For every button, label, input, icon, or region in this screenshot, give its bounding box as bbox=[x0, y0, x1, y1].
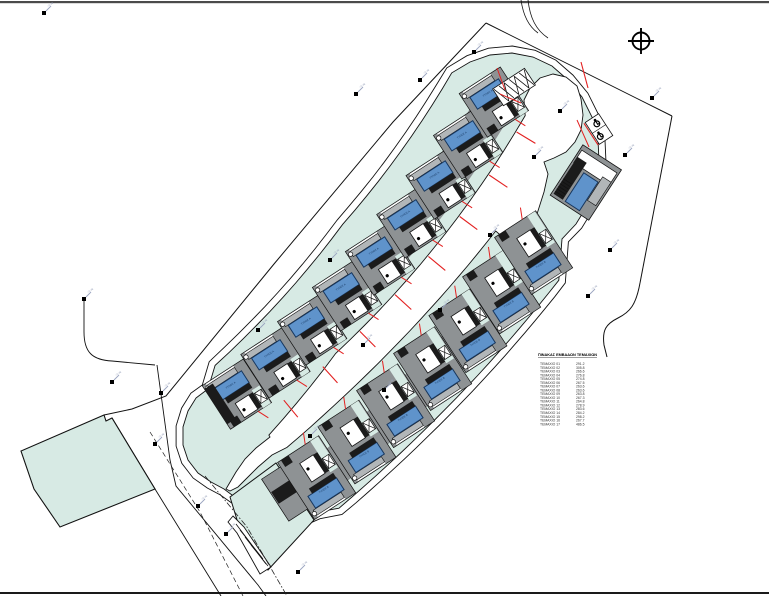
svg-text:ΤΕΜΑΧΙΟ 17: ΤΕΜΑΧΙΟ 17 bbox=[540, 422, 560, 426]
svg-text:486.5: 486.5 bbox=[576, 422, 585, 426]
svg-text:ΠΙΝΑΚΑΣ ΕΜΒΑΔΩΝ ΤΕΜΑΧΙΩΝ: ΠΙΝΑΚΑΣ ΕΜΒΑΔΩΝ ΤΕΜΑΧΙΩΝ bbox=[538, 353, 597, 357]
